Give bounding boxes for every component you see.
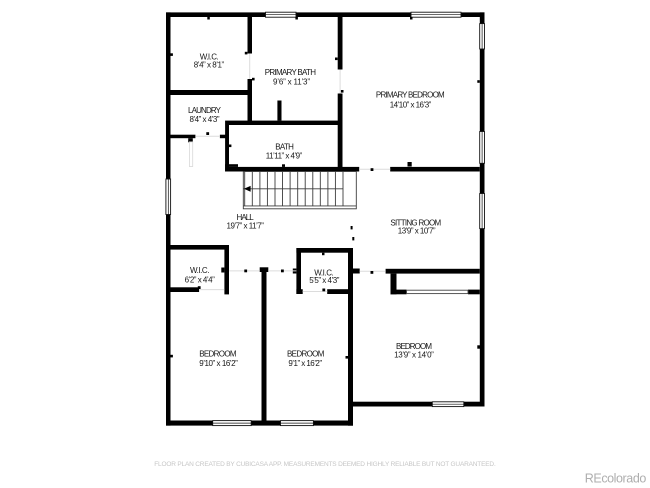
svg-text:BEDROOM: BEDROOM <box>287 349 325 358</box>
svg-text:11’11” x 4’9”: 11’11” x 4’9” <box>266 152 303 161</box>
svg-text:BEDROOM: BEDROOM <box>199 349 237 358</box>
svg-text:REcolorado: REcolorado <box>585 471 647 485</box>
svg-text:13’9” x 14’0”: 13’9” x 14’0” <box>394 350 434 359</box>
svg-text:5’5” x 4’3”: 5’5” x 4’3” <box>309 276 340 285</box>
svg-text:13’9” x 10’7”: 13’9” x 10’7” <box>398 227 436 236</box>
svg-text:8’4” x 4’3”: 8’4” x 4’3” <box>189 115 219 124</box>
svg-text:9’6” x 11’3”: 9’6” x 11’3” <box>273 77 310 86</box>
svg-text:FLOOR PLAN CREATED BY CUBICASA: FLOOR PLAN CREATED BY CUBICASA APP. MEAS… <box>154 461 496 468</box>
svg-text:PRIMARY BATH: PRIMARY BATH <box>265 68 316 77</box>
svg-text:6’2” x 4’4”: 6’2” x 4’4” <box>185 276 216 285</box>
svg-text:PRIMARY BEDROOM: PRIMARY BEDROOM <box>376 90 445 99</box>
svg-text:9’1” x 16’2”: 9’1” x 16’2” <box>288 359 322 368</box>
svg-text:LAUNDRY: LAUNDRY <box>188 106 222 115</box>
svg-text:8’4” x 8’1”: 8’4” x 8’1” <box>194 61 225 70</box>
svg-text:19’7” x 11’7”: 19’7” x 11’7” <box>227 222 265 231</box>
svg-text:BATH: BATH <box>275 142 294 151</box>
svg-text:W.I.C.: W.I.C. <box>190 266 210 275</box>
svg-text:14’10” x 16’3”: 14’10” x 16’3” <box>390 100 432 109</box>
svg-text:9’10” x 16’2”: 9’10” x 16’2” <box>199 359 238 368</box>
